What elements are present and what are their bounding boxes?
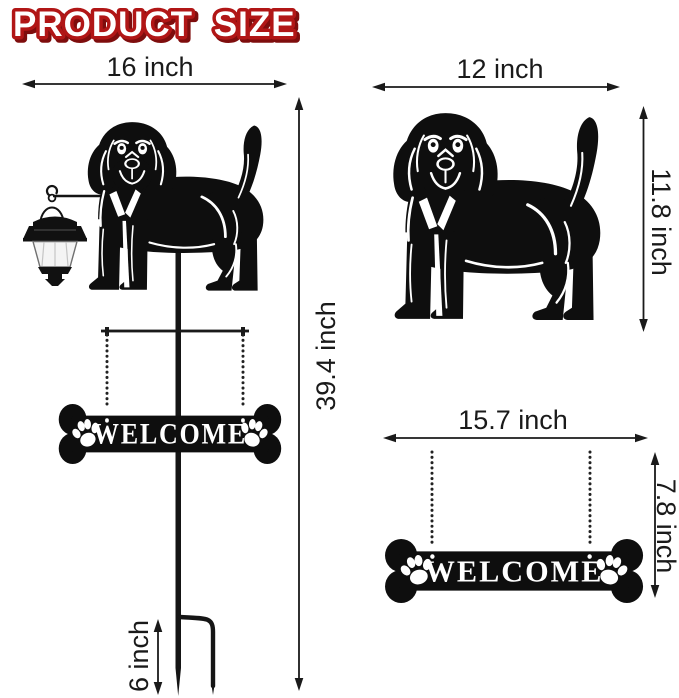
welcome-text-right: WELCOME <box>425 554 604 588</box>
title-text: PRODUCT SIZE <box>13 5 296 44</box>
dog-silhouette-right <box>393 113 600 320</box>
product-size-infographic: WELCOME WELCOM <box>0 0 679 698</box>
dim-label-12in: 12 inch <box>420 54 580 84</box>
dim-label-16in: 16 inch <box>70 52 230 82</box>
dim-label-15-7in: 15.7 inch <box>433 405 593 435</box>
lantern-base <box>38 267 72 286</box>
dim-arrow-6in <box>154 619 163 695</box>
dim-label-7-8in: 7.8 inch <box>651 472 679 580</box>
welcome-sign-right: WELCOME <box>385 539 643 603</box>
product-title: PRODUCT SIZE PRODUCT SIZE <box>4 0 344 52</box>
welcome-text-left: WELCOME <box>93 417 247 450</box>
solar-lantern <box>23 195 87 286</box>
stake-fork <box>180 617 215 695</box>
ground-stake <box>176 240 182 696</box>
lantern-glass <box>33 242 77 268</box>
lantern-cap <box>23 217 87 242</box>
sign-hanger-bar <box>101 327 249 336</box>
welcome-sign-left: WELCOME <box>59 404 281 464</box>
dim-label-6in: 6 inch <box>124 611 154 698</box>
dim-label-11-8in: 11.8 inch <box>646 162 676 282</box>
dim-arrow-39-4in <box>295 97 304 691</box>
dim-label-39-4in: 39.4 inch <box>311 291 341 421</box>
